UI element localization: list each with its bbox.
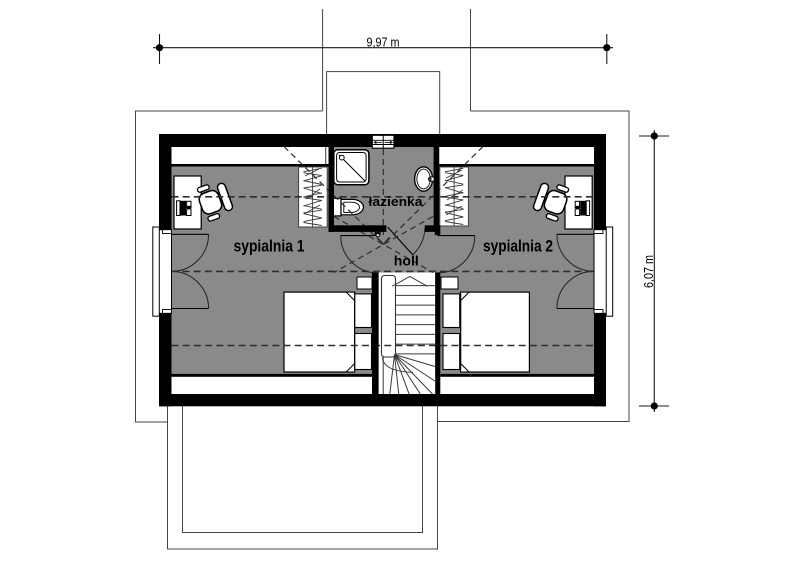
svg-text:holl: holl — [394, 254, 419, 269]
svg-text:łazienka: łazienka — [369, 194, 424, 209]
svg-text:9,97 m: 9,97 m — [367, 35, 400, 50]
svg-text:sypialnia 2: sypialnia 2 — [483, 237, 553, 256]
svg-text:6,07 m: 6,07 m — [641, 255, 656, 288]
svg-text:sypialnia 1: sypialnia 1 — [234, 237, 305, 256]
